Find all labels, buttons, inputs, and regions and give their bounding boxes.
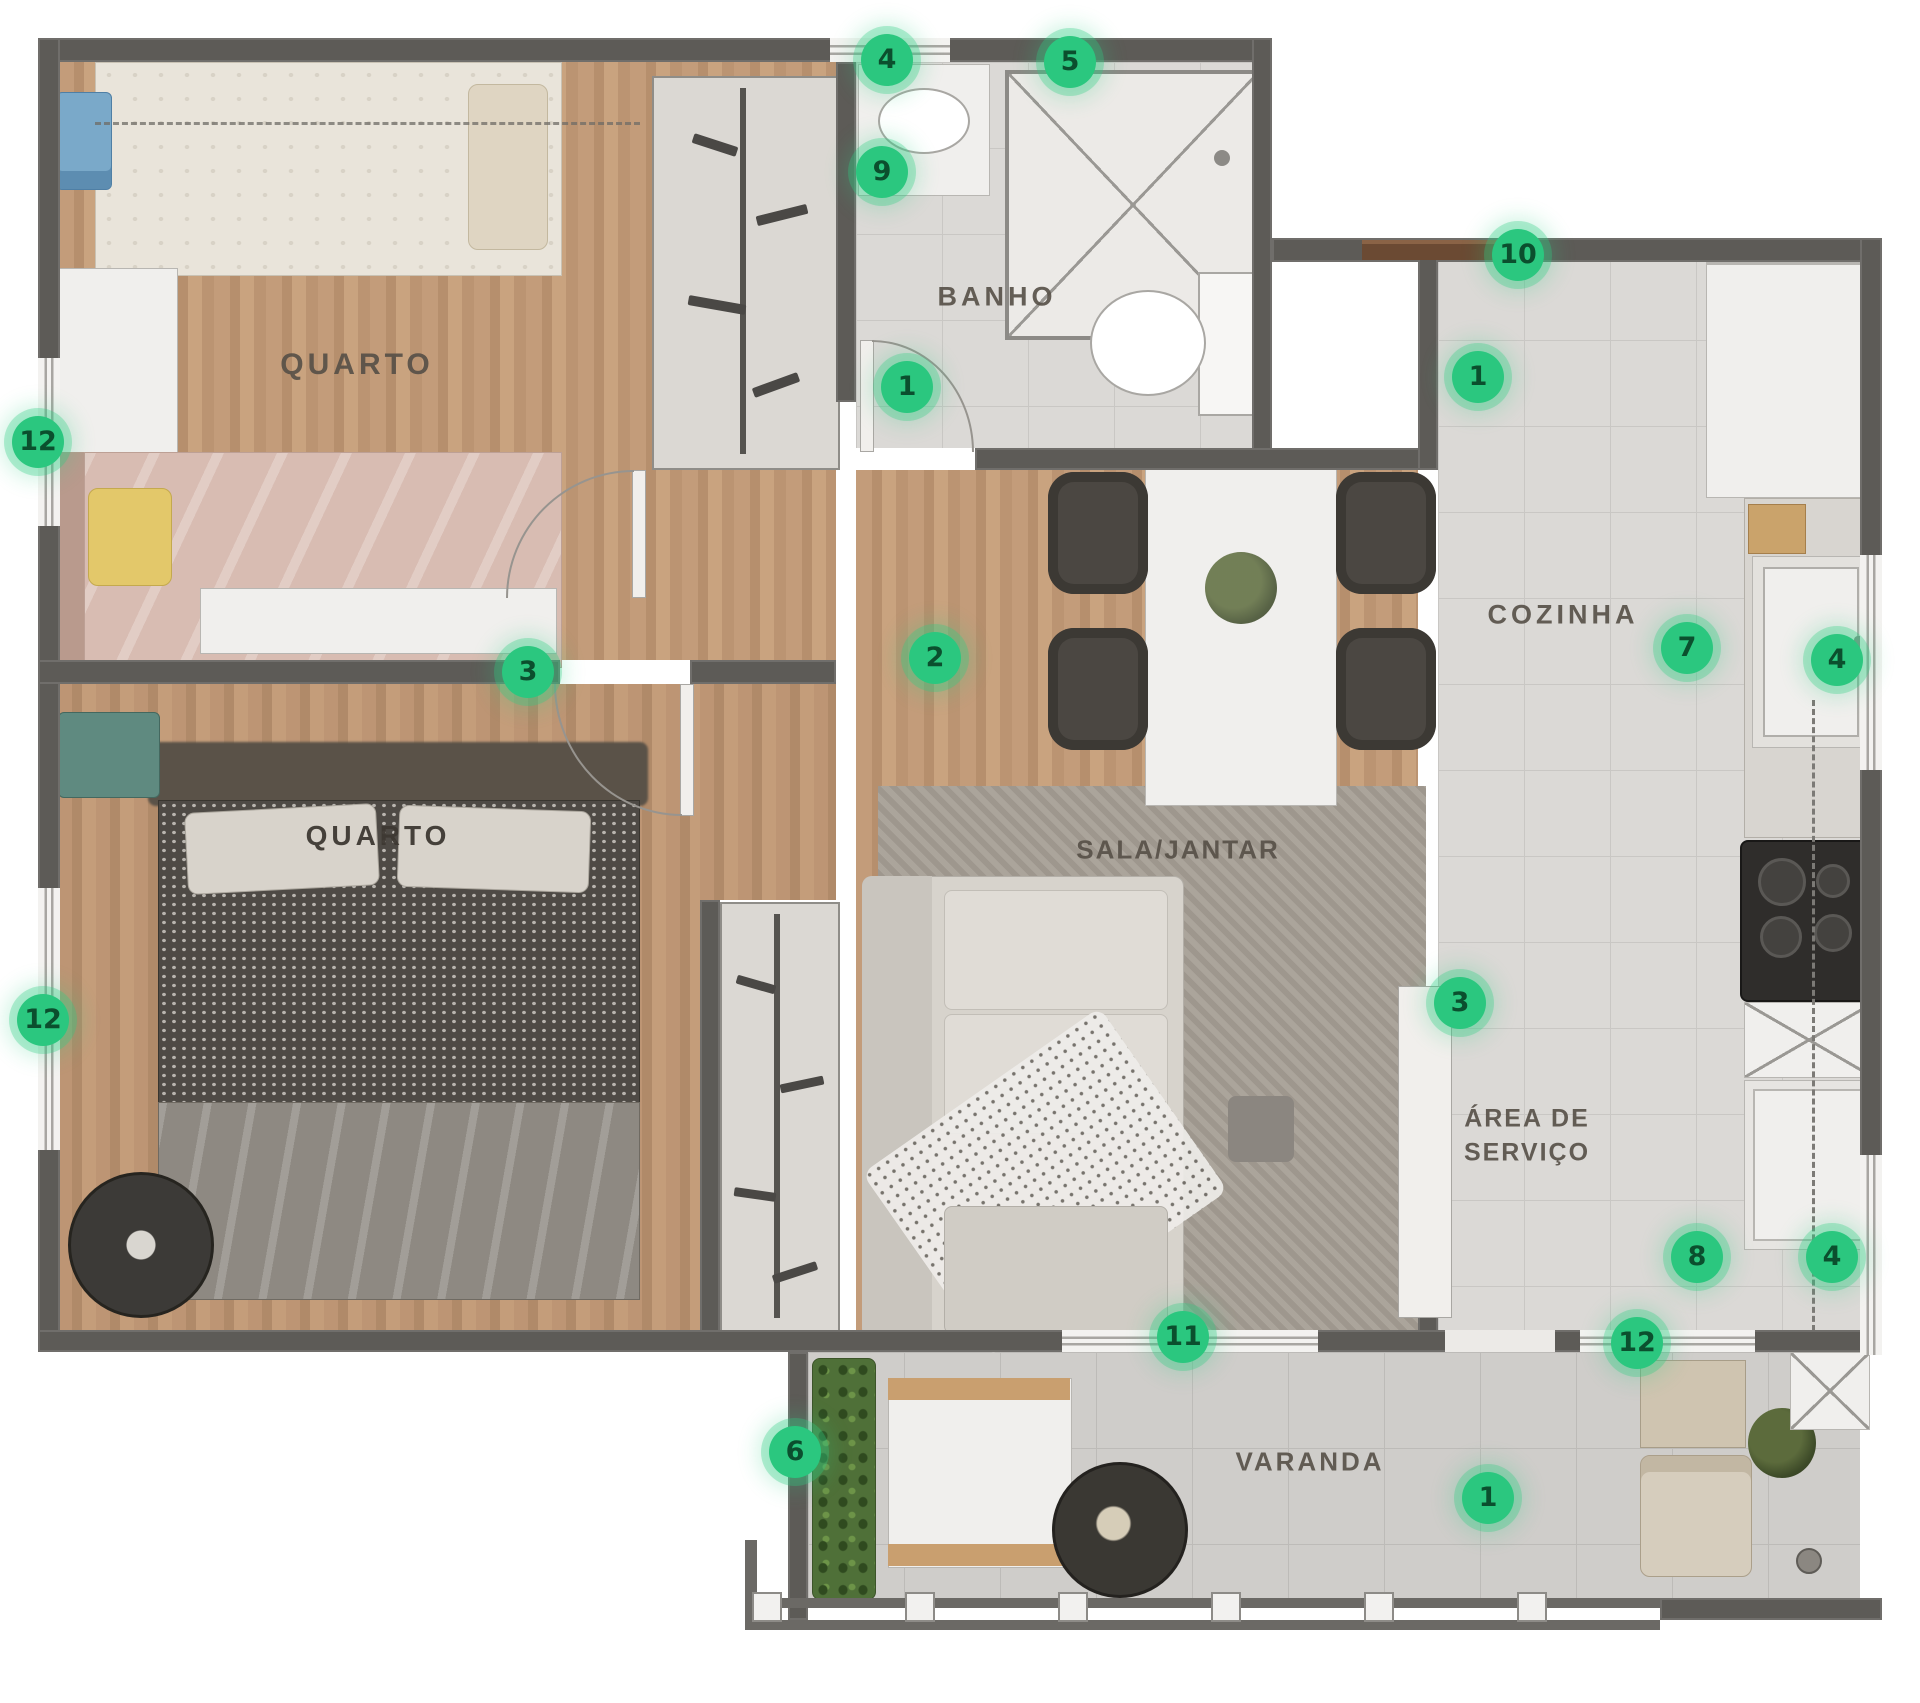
wall-balcony-left xyxy=(788,1352,808,1620)
plan-marker-4[interactable]: 4 xyxy=(861,34,913,86)
service-door-opening xyxy=(1445,1330,1555,1352)
balcony-small-object xyxy=(1796,1548,1822,1574)
washing-machine xyxy=(1744,1080,1874,1250)
sofa-chaise xyxy=(944,1206,1168,1334)
cutting-board xyxy=(1748,504,1806,554)
plan-marker-4[interactable]: 4 xyxy=(1811,634,1863,686)
sofa-backrest xyxy=(862,876,932,1338)
wall-closet-left xyxy=(700,900,720,1352)
closet2-rail xyxy=(774,914,780,1318)
bedroom2-closet xyxy=(720,902,840,1334)
stove-burner xyxy=(1760,916,1802,958)
bedroom1-dresser xyxy=(58,268,178,455)
plan-marker-4[interactable]: 4 xyxy=(1806,1231,1858,1283)
wall-bedrooms-divider-b xyxy=(690,660,836,684)
service-window xyxy=(1860,1155,1882,1355)
balcony-bench-bottom xyxy=(888,1544,1070,1566)
plan-marker-8[interactable]: 8 xyxy=(1671,1231,1723,1283)
bedroom1-sideboard xyxy=(200,588,557,654)
dining-table xyxy=(1145,448,1337,806)
wall-left xyxy=(38,38,60,1352)
toilet-tank xyxy=(1198,272,1256,416)
stove-burner xyxy=(1816,864,1850,898)
double-bed-headboard xyxy=(58,452,86,666)
balcony-plant-hedge xyxy=(812,1358,876,1600)
laundry-tub xyxy=(1790,1352,1870,1430)
room-label-banho: BANHO xyxy=(938,282,1057,313)
dining-chair xyxy=(1048,628,1148,750)
balcony-bench-top xyxy=(888,1378,1070,1400)
room-label-quarto1: QUARTO xyxy=(280,348,433,382)
plan-marker-9[interactable]: 9 xyxy=(856,146,908,198)
bed-pillow-yellow xyxy=(88,488,172,586)
rattan-pouf xyxy=(68,1172,214,1318)
railing-post xyxy=(1517,1592,1547,1622)
plan-marker-6[interactable]: 6 xyxy=(769,1426,821,1478)
plan-marker-2[interactable]: 2 xyxy=(909,632,961,684)
plan-marker-12[interactable]: 12 xyxy=(17,994,69,1046)
wall-kitchen-left-upper xyxy=(1418,254,1438,470)
plan-marker-1[interactable]: 1 xyxy=(1462,1472,1514,1524)
kitchen-window xyxy=(1860,555,1882,770)
balcony-bench xyxy=(888,1378,1072,1568)
plan-marker-5[interactable]: 5 xyxy=(1044,36,1096,88)
room-label-cozinha: COZINHA xyxy=(1488,600,1639,631)
room-label-varanda: VARANDA xyxy=(1235,1447,1384,1478)
balcony-armchair xyxy=(1640,1455,1752,1577)
plan-marker-12[interactable]: 12 xyxy=(12,416,64,468)
balcony-plant-pot xyxy=(1052,1462,1188,1598)
shower-head xyxy=(1214,150,1230,166)
wall-bedrooms-divider-a xyxy=(38,660,560,684)
plan-marker-1[interactable]: 1 xyxy=(881,361,933,413)
plan-marker-7[interactable]: 7 xyxy=(1661,622,1713,674)
plan-marker-3[interactable]: 3 xyxy=(502,646,554,698)
side-table xyxy=(1228,1096,1294,1162)
bedroom2-teal-chair xyxy=(58,712,160,798)
room-label-quarto2: QUARTO xyxy=(306,820,451,852)
wardrobe1-rail xyxy=(740,88,746,454)
toilet-bowl xyxy=(1090,290,1206,396)
stove xyxy=(1740,840,1878,1002)
single-bed-pillow xyxy=(468,84,548,250)
railing-post xyxy=(1211,1592,1241,1622)
plan-marker-1[interactable]: 1 xyxy=(1452,351,1504,403)
service-balcony-window xyxy=(1580,1330,1755,1352)
wall-bathroom-left xyxy=(836,62,856,402)
plan-marker-10[interactable]: 10 xyxy=(1492,229,1544,281)
railing-post xyxy=(752,1592,782,1622)
bedroom2-door-leaf xyxy=(680,684,694,816)
dishwasher xyxy=(1744,1002,1874,1078)
sofa-cushion xyxy=(944,890,1168,1010)
bathroom-sink-basin xyxy=(878,88,970,154)
bedroom2-floor-right xyxy=(700,684,836,900)
dining-chair xyxy=(1336,628,1436,750)
bedroom1-door-leaf xyxy=(632,470,646,598)
plan-marker-3[interactable]: 3 xyxy=(1434,977,1486,1029)
bedroom1-wardrobe xyxy=(652,76,840,470)
sliding-door-panel xyxy=(1398,986,1452,1318)
dining-chair xyxy=(1336,472,1436,594)
room-label-servico: ÁREA DE SERVIÇO xyxy=(1464,1102,1590,1170)
bed2-blanket xyxy=(158,1102,640,1300)
curtain-track xyxy=(95,122,640,125)
table-centerpiece-plant xyxy=(1205,552,1277,624)
wall-balcony-bottom-right xyxy=(1660,1598,1882,1620)
room-label-sala: SALA/JANTAR xyxy=(1076,835,1280,866)
floor-plan: QUARTOBANHOCOZINHASALA/JANTARQUARTOÁREA … xyxy=(0,0,1920,1703)
railing-post xyxy=(1058,1592,1088,1622)
dining-chair xyxy=(1048,472,1148,594)
railing-post xyxy=(1364,1592,1394,1622)
stove-burner xyxy=(1814,914,1852,952)
wall-bathroom-bottom xyxy=(975,448,1438,470)
balcony-shelf xyxy=(1640,1360,1746,1448)
desk-chair-blue xyxy=(56,92,112,190)
plan-marker-12[interactable]: 12 xyxy=(1611,1317,1663,1369)
fridge xyxy=(1706,262,1872,498)
wall-bathroom-right xyxy=(1252,38,1272,470)
railing-post xyxy=(905,1592,935,1622)
stove-burner xyxy=(1758,858,1806,906)
plan-marker-11[interactable]: 11 xyxy=(1157,1311,1209,1363)
